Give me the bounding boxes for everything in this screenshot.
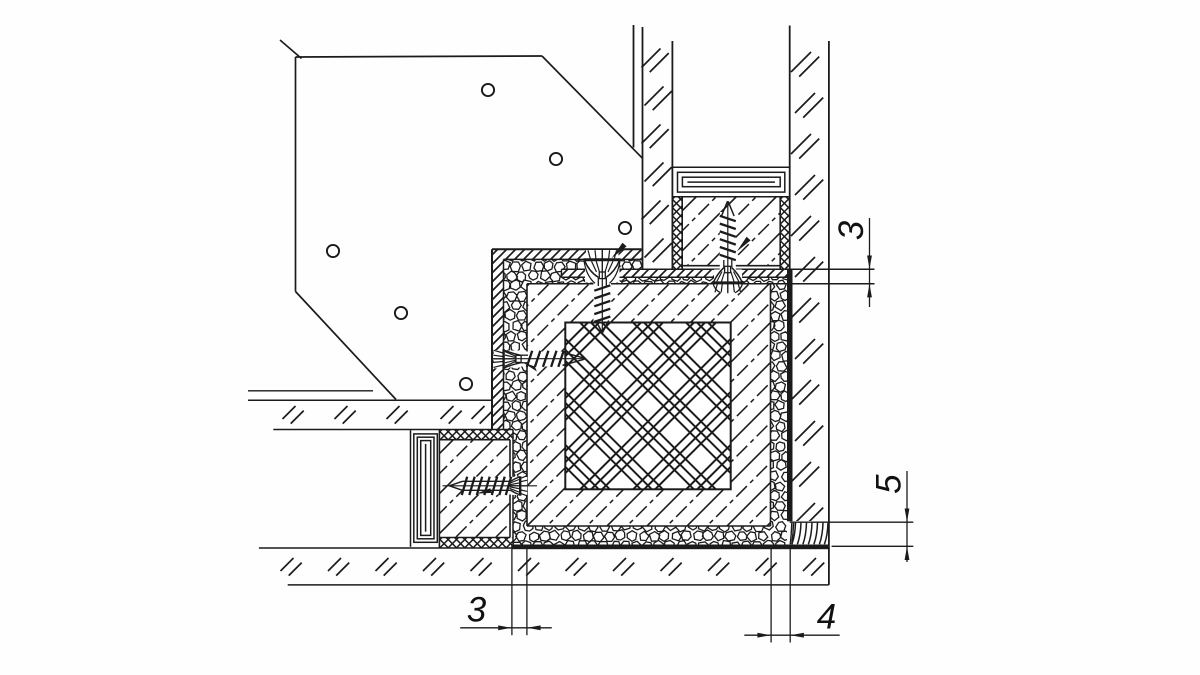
svg-text:5: 5 <box>869 474 908 494</box>
svg-text:3: 3 <box>467 591 487 630</box>
svg-text:3: 3 <box>832 220 871 240</box>
svg-text:4: 4 <box>817 598 836 637</box>
